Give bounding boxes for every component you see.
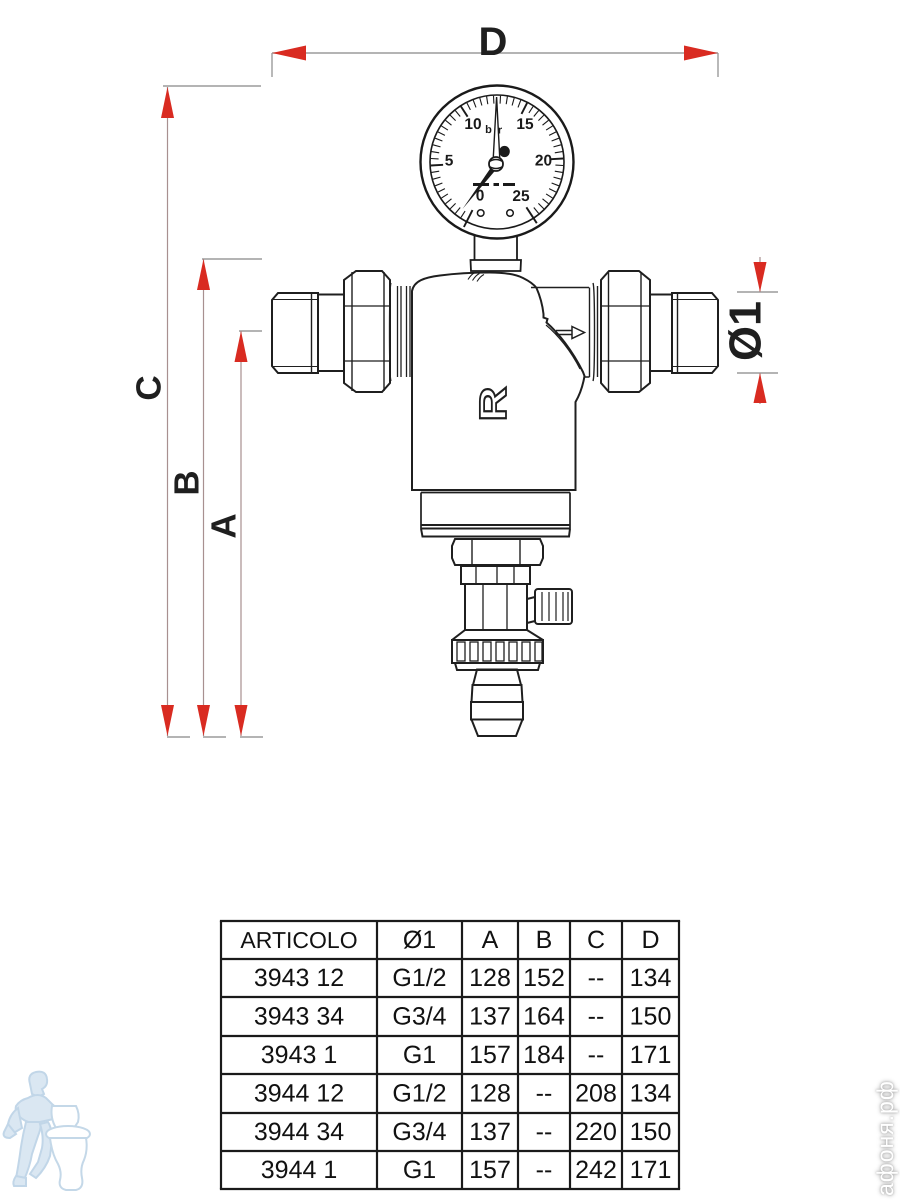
svg-text:G1: G1 [403,1041,436,1069]
svg-text:10: 10 [464,116,481,133]
svg-text:C: C [130,375,169,400]
svg-text:220: 220 [575,1118,617,1146]
svg-text:D: D [641,926,659,954]
svg-text:171: 171 [630,1156,672,1184]
svg-text:3944 1: 3944 1 [261,1156,337,1184]
svg-text:137: 137 [469,1118,511,1146]
svg-text:Ø1: Ø1 [720,301,771,361]
svg-text:208: 208 [575,1080,617,1108]
svg-text:157: 157 [469,1156,511,1184]
svg-text:5: 5 [445,153,454,170]
svg-text:25: 25 [512,188,530,205]
svg-text:3944 34: 3944 34 [254,1118,344,1146]
svg-text:184: 184 [523,1041,565,1069]
svg-text:--: -- [588,1041,605,1069]
svg-text:ARTICOLO: ARTICOLO [240,927,357,953]
svg-text:--: -- [536,1080,553,1108]
svg-text:150: 150 [630,1118,672,1146]
svg-text:Ø1: Ø1 [403,926,436,954]
svg-text:--: -- [536,1156,553,1184]
svg-text:164: 164 [523,1003,565,1031]
svg-text:B: B [536,926,553,954]
svg-text:128: 128 [469,1080,511,1108]
svg-text:150: 150 [630,1003,672,1031]
svg-text:R: R [473,387,515,422]
svg-text:G3/4: G3/4 [392,1118,446,1146]
svg-text:3944 12: 3944 12 [254,1080,344,1108]
svg-text:3943 1: 3943 1 [261,1041,337,1069]
svg-text:A: A [205,513,244,538]
svg-text:242: 242 [575,1156,617,1184]
svg-text:134: 134 [630,1080,672,1108]
svg-text:G1/2: G1/2 [392,1080,446,1108]
svg-text:3943 12: 3943 12 [254,964,344,992]
svg-text:--: -- [588,1003,605,1031]
svg-text:20: 20 [535,153,552,170]
svg-text:137: 137 [469,1003,511,1031]
svg-text:--: -- [536,1118,553,1146]
svg-text:3943 34: 3943 34 [254,1003,344,1031]
svg-text:G1: G1 [403,1156,436,1184]
svg-text:G3/4: G3/4 [392,1003,446,1031]
svg-text:134: 134 [630,964,672,992]
svg-text:--: -- [588,964,605,992]
svg-text:171: 171 [630,1041,672,1069]
svg-text:D: D [479,20,508,64]
svg-text:15: 15 [516,116,534,133]
svg-text:A: A [482,926,499,954]
svg-text:G1/2: G1/2 [392,964,446,992]
svg-text:B: B [168,470,207,495]
svg-text:157: 157 [469,1041,511,1069]
svg-text:152: 152 [523,964,565,992]
svg-text:b: b [485,124,492,136]
svg-text:C: C [587,926,605,954]
svg-text:128: 128 [469,964,511,992]
